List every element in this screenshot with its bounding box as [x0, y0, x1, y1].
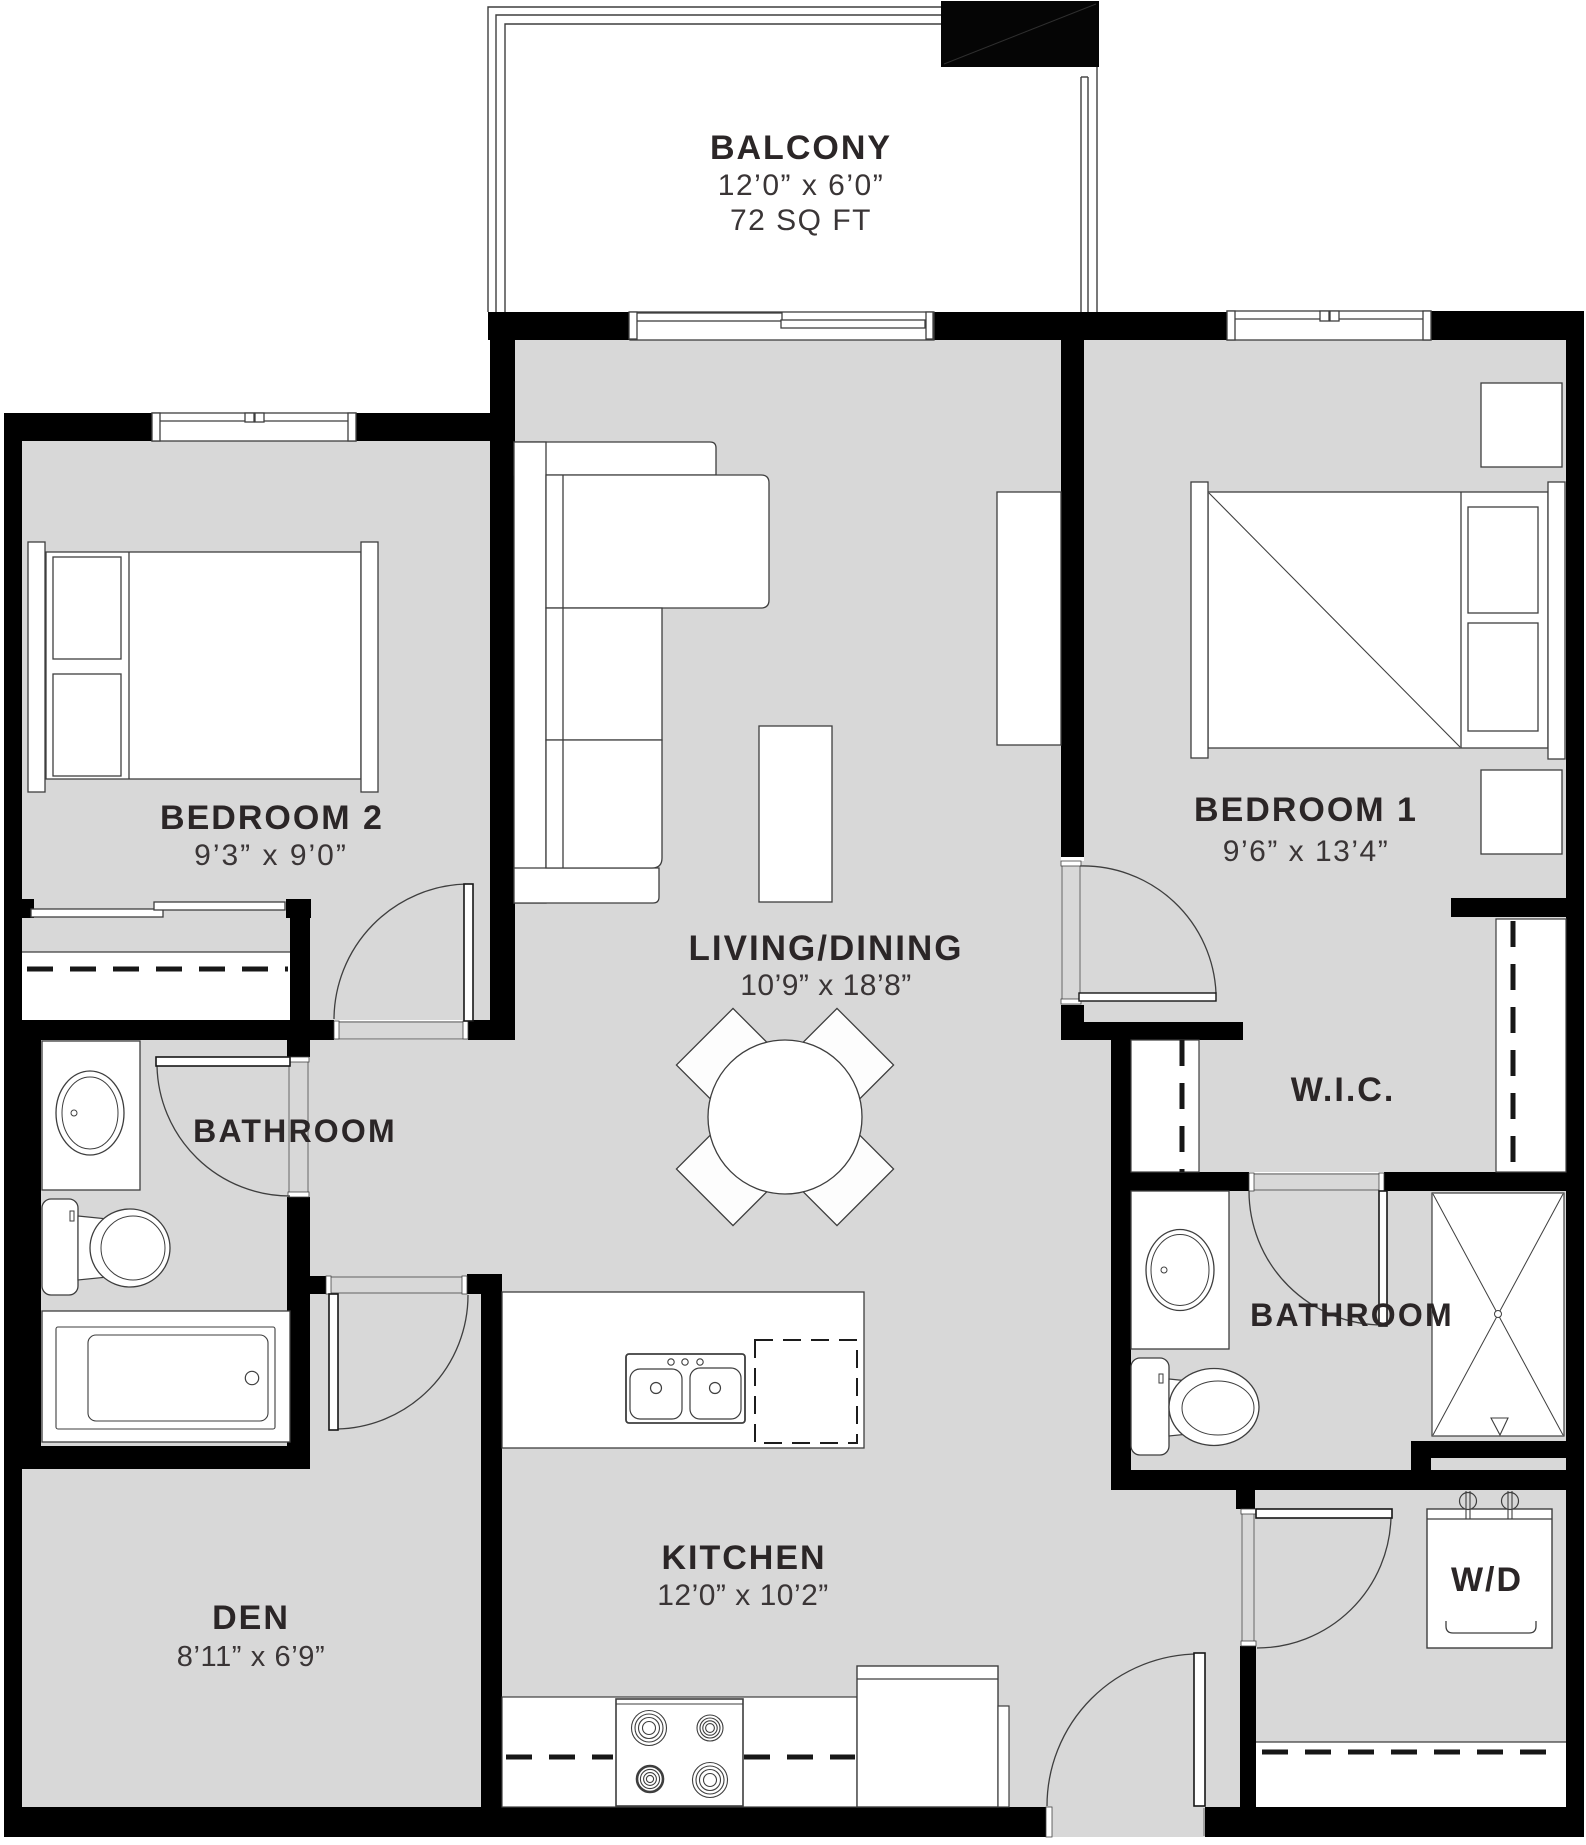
svg-text:12’0” x 10’2”: 12’0” x 10’2” [657, 1579, 829, 1612]
svg-text:9’3” x 9’0”: 9’3” x 9’0” [194, 839, 348, 872]
svg-text:12’0” x 6’0”: 12’0” x 6’0” [718, 169, 884, 202]
svg-text:BALCONY: BALCONY [710, 129, 892, 167]
svg-text:BEDROOM 2: BEDROOM 2 [160, 799, 384, 837]
svg-text:BATHROOM: BATHROOM [193, 1113, 397, 1149]
svg-text:LIVING/DINING: LIVING/DINING [689, 929, 964, 968]
svg-text:72 SQ FT: 72 SQ FT [730, 204, 872, 237]
svg-text:10’9” x 18’8”: 10’9” x 18’8” [740, 969, 912, 1002]
svg-text:BEDROOM 1: BEDROOM 1 [1194, 791, 1418, 829]
svg-text:W.I.C.: W.I.C. [1291, 1071, 1396, 1109]
svg-text:KITCHEN: KITCHEN [661, 1539, 826, 1577]
svg-text:BATHROOM: BATHROOM [1250, 1297, 1454, 1333]
svg-text:8’11” x 6’9”: 8’11” x 6’9” [177, 1641, 326, 1673]
svg-text:9’6” x 13’4”: 9’6” x 13’4” [1223, 835, 1389, 868]
svg-text:W/D: W/D [1451, 1561, 1523, 1599]
svg-text:DEN: DEN [212, 1599, 290, 1637]
